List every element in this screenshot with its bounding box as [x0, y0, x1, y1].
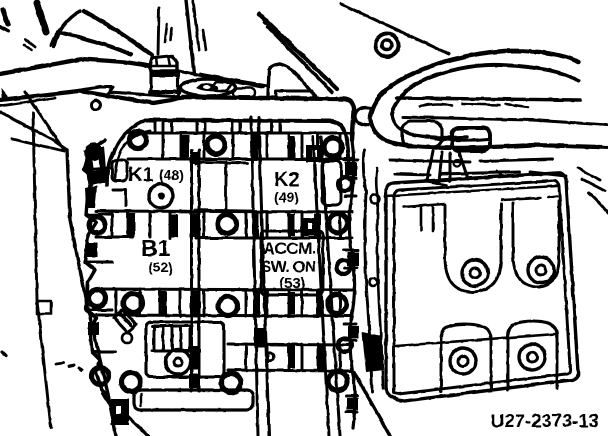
svg-text:K1: K1: [128, 164, 154, 186]
svg-text:B1: B1: [141, 235, 171, 261]
svg-text:U27-2373-13: U27-2373-13: [491, 410, 599, 431]
svg-text:(49): (49): [274, 189, 299, 205]
svg-text:(52): (52): [148, 259, 173, 275]
svg-text:SW. ON: SW. ON: [261, 259, 316, 276]
svg-text:(48): (48): [159, 167, 184, 183]
svg-text:K2: K2: [274, 169, 300, 191]
svg-text:ACCM.: ACCM.: [263, 239, 316, 258]
